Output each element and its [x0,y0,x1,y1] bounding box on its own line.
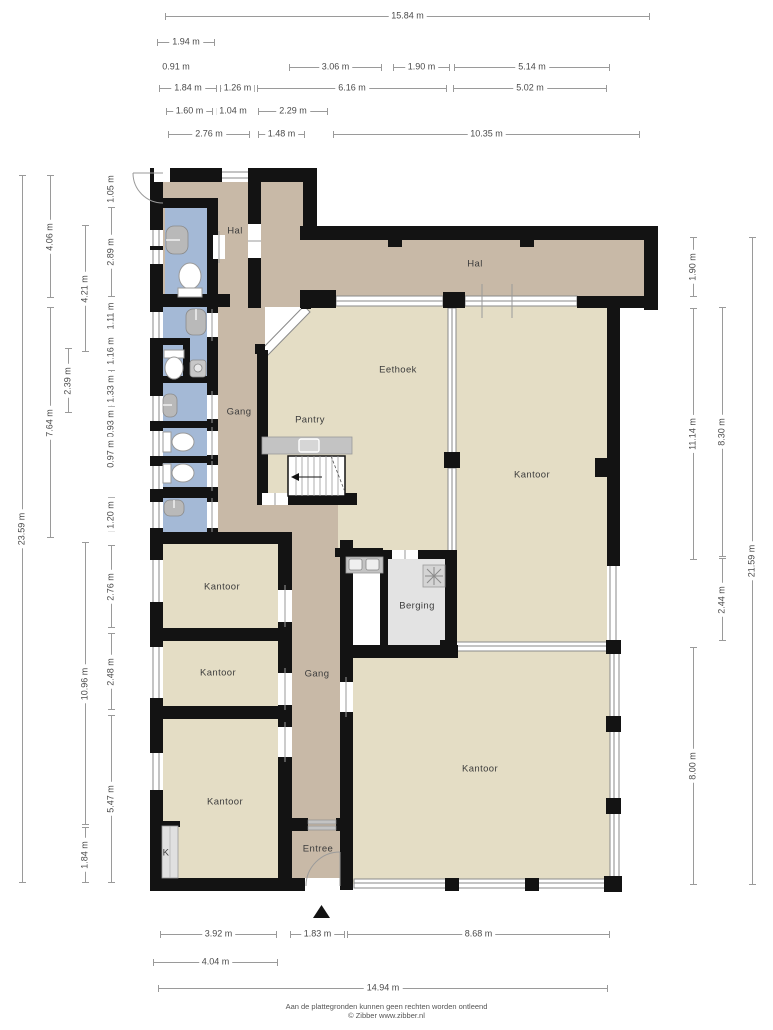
floors [156,175,651,886]
dimension-label: 1.90 m [405,62,439,73]
door-opening [207,309,218,341]
wall-segment [150,628,292,641]
room-label: Entree [303,844,333,855]
dimension-label: 5.47 m [106,782,117,816]
wall-post [606,716,621,732]
floor-gang-lower-entree [288,540,345,886]
toilet-icon [163,432,194,452]
wall-segment [150,532,292,544]
window [150,560,163,602]
dimension-label: 15.84 m [388,11,427,22]
sink-icon [349,559,362,570]
door-opening [248,224,261,258]
room-label: K [163,848,170,859]
dimension-label: 21.59 m [747,542,758,581]
dimension-label: 11.14 m [688,415,699,453]
door-opening [278,722,292,762]
copyright-line: © Zibber www.zibber.nl [0,1011,773,1020]
wall-segment [444,452,460,468]
room-label: Kantoor [207,797,243,808]
dimension-label: 7.64 m [45,406,56,440]
door-opening-entree [305,878,340,891]
room-label: Hal [227,226,242,237]
window [150,647,163,698]
dimension-label: 10.35 m [467,129,506,140]
dimension-label: 1.48 m [265,129,299,140]
floor-hal-corridor [306,233,651,306]
shower-icon [190,360,206,377]
sink-icon [366,559,379,570]
dimension-label: 1.33 m [106,372,117,406]
sink-icon [186,309,206,335]
door-opening [392,550,418,559]
disclaimer: Aan de plattegronden kunnen geen rechten… [0,1002,773,1021]
room-label: Berging [399,601,435,612]
wall-post [440,640,456,653]
wall-segment [301,300,311,309]
dimension-label: 6.16 m [335,83,369,94]
dimension-label: 1.60 m [173,106,207,117]
door-opening [278,585,292,627]
dimension-label: 1.05 m [106,172,117,206]
toilet-icon [164,350,184,379]
wall-segment [644,226,658,310]
dimension-label: 2.76 m [106,570,117,604]
wall-segment [248,258,261,308]
dimension-label: 1.11 m [106,300,117,333]
door-opening [207,461,218,491]
door-opening-main-entrance-nw [154,168,170,182]
door-opening [340,677,353,717]
dimension-label: 8.30 m [717,415,728,449]
wall-segment [443,292,465,308]
wall-segment [520,240,534,247]
dimension-label: 2.89 m [106,235,117,269]
dimension-label: 5.14 m [515,62,549,73]
window [150,312,163,338]
room-label: Gang [227,407,252,418]
dimension-label: 1.26 m [221,83,255,94]
room-label: Eethoek [379,365,417,376]
stairs-icon [288,456,345,496]
dimension-label: 1.16 m [106,334,117,368]
room-label: Hal [467,259,482,270]
floorplan-page: 15.84 m1.94 m0.91 m3.06 m1.90 m5.14 m1.8… [0,0,773,1030]
wall-segment [162,421,208,428]
wall-segment [577,296,644,308]
window [607,566,620,640]
wall-segment [162,487,208,498]
door-opening [207,427,218,459]
window [150,230,163,246]
wall-segment [335,548,383,557]
window [150,466,163,489]
dimension-label: 2.44 m [717,583,728,617]
dimension-label: 4.04 m [199,957,233,968]
room-label: Pantry [295,415,325,426]
wall-segment [257,350,268,495]
wall-segment [336,818,353,831]
door-opening [207,391,218,423]
dimension-label: 1.20 m [106,498,117,532]
window [150,250,163,264]
wall-segment [248,182,261,224]
window [150,502,163,528]
wall-post [606,640,621,654]
dimension-label: 3.92 m [202,929,236,940]
dimension-label: 23.59 m [17,510,28,549]
dimension-label: 1.04 m [216,106,250,117]
room-label: Kantoor [514,470,550,481]
disclaimer-line: Aan de plattegronden kunnen geen rechten… [0,1002,773,1011]
dimension-label: 8.00 m [688,749,699,783]
pantry-sink-icon [299,439,319,452]
wall-segment [162,456,208,463]
sink-icon [164,500,184,516]
wall-segment [255,344,265,354]
dimension-label: 2.39 m [63,364,74,398]
window [150,753,163,790]
dimension-label: 1.94 m [169,37,203,48]
wall-post [525,878,539,891]
wall-segment [150,878,307,891]
wall-segment [388,240,402,247]
room-label: Kantoor [200,668,236,679]
dimension-label: 1.90 m [688,250,699,284]
wall-segment [150,706,292,719]
dimension-label: 0.91 m [159,62,193,73]
dimension-label: 2.48 m [106,655,117,689]
wall-post [604,876,622,892]
hvac-unit-icon [423,565,445,587]
dimension-label: 4.21 m [80,272,91,306]
dimension-label: 1.83 m [301,929,335,940]
sink-icon [166,226,188,254]
toilet-icon [178,263,202,297]
wall-post [445,878,459,891]
door-opening [262,493,288,505]
north-arrow-icon [313,905,330,918]
dimension-label: 0.97 m [106,437,117,471]
dimension-label: 5.02 m [513,83,547,94]
wall-segment [607,308,620,566]
door-opening [213,231,225,263]
dimension-label: 4.06 m [45,220,56,254]
room-label: Kantoor [462,764,498,775]
wall-pilaster [595,458,607,477]
wall-post [606,798,621,814]
dimension-label: 2.76 m [192,129,226,140]
dimension-label: 10.96 m [80,664,91,703]
door-opening [207,498,218,532]
window [150,431,163,456]
wall-segment [300,226,658,240]
dimension-label: 1.84 m [80,838,91,872]
dimension-label: 1.84 m [171,83,205,94]
room-label: Kantoor [204,582,240,593]
room-label: Gang [305,669,330,680]
dimension-label: 3.06 m [319,62,353,73]
sink-icon [163,394,177,417]
dimension-label: 8.68 m [462,929,496,940]
dimension-label: 0.93 m [106,407,117,441]
wall-segment [292,818,308,831]
toilet-icon [163,464,194,483]
dimension-label: 14.94 m [364,983,403,994]
window [222,168,248,182]
door-opening [278,668,292,710]
dimension-label: 2.29 m [276,106,310,117]
window [150,396,163,421]
